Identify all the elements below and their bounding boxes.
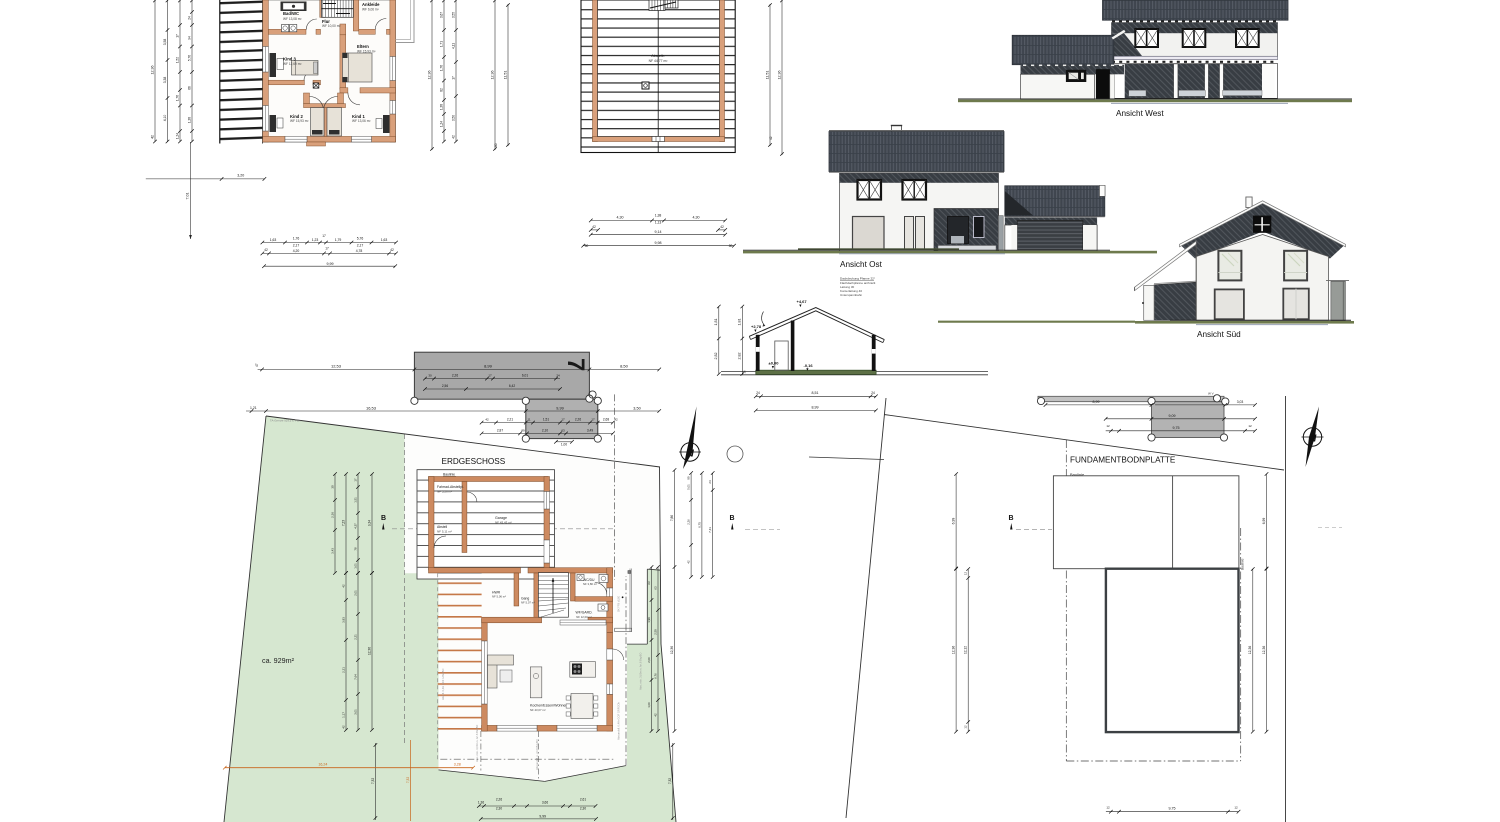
svg-text:Ankleide: Ankleide [362, 2, 380, 7]
svg-text:7,32: 7,32 [371, 778, 375, 784]
svg-text:4,20: 4,20 [293, 249, 300, 253]
svg-text:3,49: 3,49 [587, 428, 593, 432]
svg-text:2,10: 2,10 [542, 428, 548, 432]
svg-text:1,71: 1,71 [439, 41, 443, 47]
svg-text:Kochen/Essen/Wohnen: Kochen/Essen/Wohnen [530, 704, 568, 708]
svg-text:42: 42 [653, 713, 657, 717]
svg-text:Abst.fl. 0,4H GRF n.BayBO: Abst.fl. 0,4H GRF n.BayBO [441, 669, 445, 700]
svg-text:3,58: 3,58 [163, 39, 167, 46]
svg-text:Abstandsfl. 0,4H+GOF GRF/2Oh: Abstandsfl. 0,4H+GOF GRF/2Oh [617, 701, 621, 740]
svg-text:1,52: 1,52 [175, 57, 179, 63]
svg-text:42: 42 [341, 725, 345, 729]
svg-text:42: 42 [614, 418, 618, 422]
svg-text:2,21: 2,21 [341, 667, 345, 673]
svg-text:3,55: 3,55 [451, 12, 455, 18]
svg-text:5,76: 5,76 [187, 55, 191, 61]
svg-text:Dachdeckung Pfanne 22°: Dachdeckung Pfanne 22° [840, 277, 876, 281]
svg-text:12,36: 12,36 [1248, 646, 1252, 655]
svg-text:80: 80 [494, 143, 498, 147]
svg-text:Flur: Flur [322, 19, 330, 24]
svg-text:7,32: 7,32 [668, 778, 672, 784]
svg-text:Bad/WC: Bad/WC [283, 11, 299, 16]
svg-text:4,11: 4,11 [451, 43, 455, 49]
svg-text:Ansicht West: Ansicht West [1116, 109, 1164, 118]
svg-text:Kind 1: Kind 1 [352, 114, 365, 119]
svg-text:24: 24 [556, 374, 560, 378]
svg-text:12,36: 12,36 [1262, 646, 1266, 655]
svg-text:1,51: 1,51 [543, 418, 549, 422]
svg-text:9,98: 9,98 [655, 241, 662, 245]
svg-text:4,30: 4,30 [617, 215, 624, 219]
svg-text:6,99: 6,99 [1262, 518, 1266, 525]
svg-text:8,50: 8,50 [620, 363, 629, 368]
svg-text:12,36: 12,36 [777, 71, 781, 80]
svg-text:24: 24 [187, 16, 191, 20]
svg-text:8,99: 8,99 [812, 405, 819, 409]
svg-text:42: 42 [451, 135, 455, 139]
svg-text:Fahrrad-Abstellpl.: Fahrrad-Abstellpl. [437, 485, 464, 489]
svg-text:1,38: 1,38 [187, 117, 191, 123]
svg-text:2,17: 2,17 [293, 244, 300, 248]
svg-text:6,01: 6,01 [522, 374, 528, 378]
svg-text:12,36: 12,36 [490, 71, 494, 80]
svg-text:Baulinie: Baulinie [443, 473, 455, 477]
svg-text:4,30: 4,30 [693, 215, 700, 219]
svg-text:17: 17 [561, 418, 565, 422]
svg-text:5,76: 5,76 [357, 237, 364, 241]
svg-text:2,00: 2,00 [647, 657, 651, 663]
svg-text:47: 47 [255, 363, 259, 367]
svg-text:WF 12,69 m²: WF 12,69 m² [283, 62, 301, 66]
svg-text:12,12: 12,12 [964, 646, 968, 654]
svg-text:WF 15,93 m²: WF 15,93 m² [290, 119, 308, 123]
svg-text:30: 30 [428, 374, 432, 378]
svg-text:3,20: 3,20 [237, 173, 244, 177]
svg-text:Unterspannbahn: Unterspannbahn [840, 293, 863, 297]
svg-text:2,26: 2,26 [452, 374, 458, 378]
svg-text:3,50: 3,50 [451, 115, 455, 121]
svg-text:16,53: 16,53 [366, 405, 377, 410]
svg-text:7,64: 7,64 [353, 674, 357, 680]
svg-text:2,87: 2,87 [497, 428, 503, 432]
svg-text:24: 24 [708, 480, 712, 484]
svg-text:2,21: 2,21 [507, 418, 513, 422]
svg-text:8,99: 8,99 [484, 363, 493, 368]
svg-text:1,17: 1,17 [341, 712, 345, 718]
svg-text:24: 24 [871, 391, 875, 395]
svg-text:NF 44,77 m²: NF 44,77 m² [649, 59, 669, 63]
svg-text:1,81: 1,81 [714, 319, 718, 326]
svg-text:9,99: 9,99 [539, 814, 546, 818]
svg-text:2,30: 2,30 [580, 807, 586, 811]
svg-text:2,26: 2,26 [687, 519, 691, 525]
svg-text:N: N [1309, 433, 1317, 445]
svg-text:42: 42 [150, 135, 154, 139]
svg-text:6,42: 6,42 [509, 384, 515, 388]
svg-text:NF 5,06 m²: NF 5,06 m² [492, 595, 506, 599]
svg-text:NF 5,11 m²: NF 5,11 m² [437, 529, 452, 533]
svg-text:42: 42 [687, 560, 691, 564]
svg-text:1,63: 1,63 [270, 238, 277, 242]
svg-text:W V: W V [1208, 392, 1214, 396]
svg-text:6,99: 6,99 [952, 518, 956, 525]
svg-text:B: B [381, 515, 386, 522]
svg-text:5,01: 5,01 [687, 484, 691, 490]
svg-text:12: 12 [1248, 424, 1252, 428]
svg-text:NF 5,26 m²: NF 5,26 m² [437, 489, 452, 493]
svg-text:Baulinie: Baulinie [1241, 558, 1245, 570]
svg-text:2,82: 2,82 [738, 353, 742, 360]
svg-text:66: 66 [187, 86, 191, 90]
svg-text:2,36: 2,36 [330, 512, 334, 518]
svg-text:17: 17 [353, 478, 357, 482]
svg-text:63: 63 [653, 586, 657, 590]
svg-text:Ansicht Süd: Ansicht Süd [1197, 330, 1241, 339]
svg-text:8,99: 8,99 [1093, 400, 1100, 404]
svg-text:99: 99 [687, 476, 691, 480]
svg-text:Eltern: Eltern [357, 44, 369, 49]
svg-text:3,01: 3,01 [353, 709, 357, 715]
svg-text:2,82: 2,82 [714, 353, 718, 360]
svg-text:1,23: 1,23 [312, 238, 319, 242]
svg-text:7,41: 7,41 [708, 527, 712, 533]
svg-text:3,28: 3,28 [454, 763, 461, 767]
svg-text:Abstellr.: Abstellr. [651, 54, 665, 58]
svg-text:12: 12 [1106, 805, 1110, 809]
svg-text:7,01: 7,01 [186, 193, 190, 200]
svg-text:Kind 3: Kind 3 [283, 57, 296, 62]
svg-text:7,32: 7,32 [406, 777, 410, 783]
svg-text:4,10: 4,10 [163, 115, 167, 122]
svg-text:9,75: 9,75 [1173, 426, 1180, 430]
svg-text:2,56: 2,56 [442, 384, 448, 388]
svg-text:1,38: 1,38 [655, 213, 662, 217]
svg-text:1,76: 1,76 [175, 95, 179, 101]
svg-text:12: 12 [1106, 424, 1110, 428]
svg-text:78: 78 [353, 547, 357, 551]
svg-text:1,99: 1,99 [647, 617, 651, 623]
svg-text:WF 13,06 m²: WF 13,06 m² [352, 119, 370, 123]
svg-text:42: 42 [592, 225, 596, 229]
svg-text:Kind 2: Kind 2 [290, 114, 303, 119]
svg-text:3,38: 3,38 [163, 77, 167, 84]
svg-text:63: 63 [561, 428, 565, 432]
svg-text:3,83: 3,83 [341, 617, 345, 623]
svg-text:1,38: 1,38 [439, 104, 443, 110]
svg-text:24: 24 [756, 391, 760, 395]
svg-text:Ansicht Ost: Ansicht Ost [840, 260, 883, 269]
svg-text:1,24: 1,24 [175, 133, 179, 139]
svg-text:2,68: 2,68 [603, 418, 609, 422]
svg-text:+2,78: +2,78 [751, 324, 762, 329]
svg-text:9,75: 9,75 [1169, 807, 1176, 811]
svg-text:TA-Grenze 929,5 lt. Plan: TA-Grenze 929,5 lt. Plan [270, 419, 301, 423]
svg-text:16,24: 16,24 [318, 763, 327, 767]
svg-text:1,81: 1,81 [738, 319, 742, 326]
svg-text:ca. 929m²: ca. 929m² [262, 656, 295, 665]
svg-text:1,76: 1,76 [439, 65, 443, 71]
svg-text:3,67: 3,67 [439, 12, 443, 18]
svg-text:30: 30 [330, 485, 334, 489]
svg-text:82: 82 [439, 88, 443, 92]
svg-text:1,21: 1,21 [250, 406, 257, 410]
svg-text:11: 11 [527, 418, 530, 422]
svg-text:WF 6,06 m²: WF 6,06 m² [362, 7, 379, 11]
svg-text:42: 42 [720, 225, 724, 229]
svg-text:1,79: 1,79 [335, 238, 342, 242]
svg-text:B: B [730, 515, 735, 522]
svg-text:89: 89 [521, 428, 525, 432]
svg-text:6,75: 6,75 [697, 522, 701, 528]
svg-text:Abst. min. 3,00m n. Art.6 BayB: Abst. min. 3,00m n. Art.6 BayBO [475, 725, 479, 762]
svg-text:2,17: 2,17 [357, 244, 364, 248]
svg-text:12: 12 [964, 572, 968, 576]
svg-text:9,14: 9,14 [655, 230, 662, 234]
svg-text:12,53: 12,53 [331, 363, 342, 368]
svg-text:12,36: 12,36 [367, 647, 371, 655]
svg-text:94: 94 [187, 36, 191, 40]
svg-text:7,23: 7,23 [341, 520, 345, 526]
svg-text:2,26: 2,26 [496, 797, 502, 801]
svg-text:42: 42 [341, 584, 345, 588]
svg-text:2,59: 2,59 [653, 629, 657, 635]
svg-text:17: 17 [451, 76, 455, 80]
svg-text:12: 12 [1234, 805, 1238, 809]
svg-text:ERDGESCHOSS: ERDGESCHOSS [442, 457, 506, 466]
svg-text:B: B [1009, 515, 1014, 522]
svg-text:3,66: 3,66 [542, 801, 548, 805]
svg-text:1,00: 1,00 [561, 443, 567, 447]
svg-text:17: 17 [175, 34, 179, 38]
svg-text:11,51: 11,51 [503, 71, 507, 80]
svg-text:WF 13,08 m²: WF 13,08 m² [283, 17, 301, 21]
svg-text:3,03: 3,03 [1237, 400, 1244, 404]
svg-text:FUNDAMENTBODNPLATTE: FUNDAMENTBODNPLATTE [1070, 456, 1176, 465]
svg-text:Abst. min. 3,00m n. Art.6 BayB: Abst. min. 3,00m n. Art.6 BayBO [639, 653, 643, 690]
svg-text:16: 16 [743, 370, 747, 374]
svg-text:6,76: 6,76 [653, 673, 657, 679]
svg-text:Abstell: Abstell [437, 525, 447, 529]
svg-text:12,36: 12,36 [427, 71, 431, 80]
svg-text:12: 12 [964, 725, 968, 729]
svg-text:42: 42 [264, 248, 268, 252]
svg-text:Garage: Garage [495, 516, 507, 520]
svg-text:2,21: 2,21 [353, 634, 357, 640]
svg-text:2,01: 2,01 [353, 590, 357, 596]
svg-text:42: 42 [485, 418, 489, 422]
svg-text:NF 43,07 m²: NF 43,07 m² [530, 708, 546, 712]
svg-text:4,78: 4,78 [356, 249, 363, 253]
svg-text:-0,16: -0,16 [804, 363, 814, 368]
svg-text:7,86: 7,86 [670, 515, 674, 521]
svg-text:12,36: 12,36 [952, 646, 956, 655]
svg-text:4,37: 4,37 [353, 523, 357, 529]
svg-text:9,99: 9,99 [327, 262, 334, 266]
svg-text:11,51: 11,51 [765, 71, 769, 80]
svg-text:8,51: 8,51 [812, 391, 819, 395]
svg-text:3,43: 3,43 [330, 548, 334, 554]
svg-text:NF 5,07 m²: NF 5,07 m² [521, 601, 535, 605]
svg-text:3,50: 3,50 [633, 406, 640, 410]
svg-text:±0,00: ±0,00 [769, 361, 780, 366]
svg-text:1,36: 1,36 [478, 801, 484, 805]
svg-text:9,99: 9,99 [556, 406, 563, 410]
svg-text:80: 80 [585, 244, 589, 248]
svg-text:1,24: 1,24 [439, 121, 443, 127]
svg-text:2,30: 2,30 [496, 807, 502, 811]
svg-text:+4,67: +4,67 [797, 299, 808, 304]
svg-text:17: 17 [325, 247, 329, 251]
svg-text:17: 17 [322, 234, 326, 238]
svg-text:42: 42 [769, 136, 773, 140]
svg-text:80: 80 [729, 244, 733, 248]
svg-text:9,09: 9,09 [1169, 414, 1176, 418]
svg-text:NF 43,43 m²: NF 43,43 m² [495, 520, 512, 524]
svg-text:42: 42 [390, 248, 394, 252]
svg-text:12,36: 12,36 [150, 66, 154, 75]
svg-text:17: 17 [591, 418, 595, 422]
svg-text:2,61: 2,61 [580, 797, 586, 801]
svg-text:63: 63 [647, 581, 651, 585]
svg-text:9,34: 9,34 [367, 520, 371, 526]
svg-text:1,13: 1,13 [655, 220, 662, 224]
svg-text:1,76: 1,76 [293, 237, 300, 241]
svg-text:WF 10,00 m²: WF 10,00 m² [322, 24, 340, 28]
svg-text:1,01: 1,01 [353, 563, 357, 569]
svg-text:1,00: 1,00 [647, 702, 651, 708]
svg-text:OK FFB ±0,00: OK FFB ±0,00 [618, 595, 621, 612]
svg-text:WF 15,93 m²: WF 15,93 m² [357, 49, 375, 53]
svg-text:N: N [686, 448, 694, 460]
svg-text:1,63: 1,63 [381, 238, 388, 242]
svg-text:12,36: 12,36 [670, 646, 674, 654]
svg-text:2,26: 2,26 [575, 418, 581, 422]
svg-text:17: 17 [488, 374, 492, 378]
svg-text:NF 12,00 m²: NF 12,00 m² [576, 615, 592, 619]
svg-text:1,51: 1,51 [353, 497, 357, 503]
